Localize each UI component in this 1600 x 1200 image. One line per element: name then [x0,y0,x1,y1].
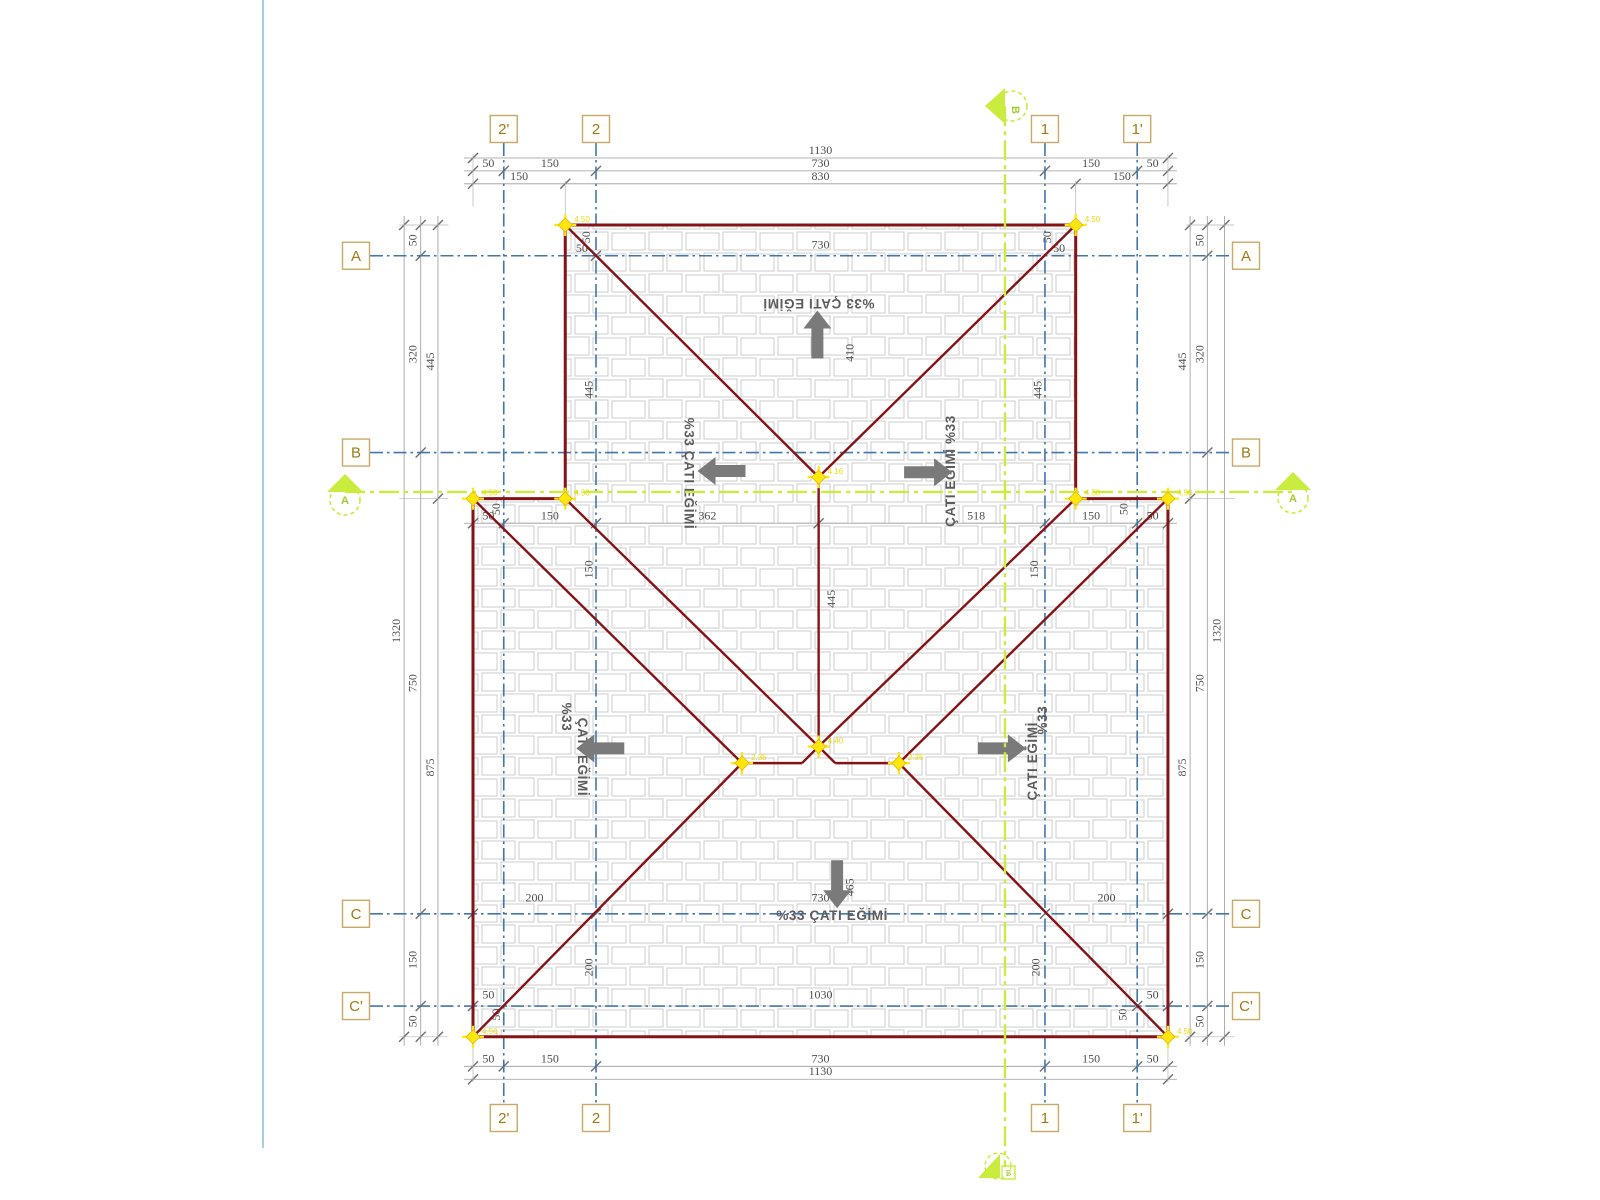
dim-label: 150 [541,156,559,170]
section-marker-a-right-letter: A [1289,493,1297,505]
dim-row: 1130 [464,1064,1177,1084]
dim-label: 150 [1082,1051,1100,1065]
dim-row: 150830150 [464,169,1177,189]
grid-row-right-label: C' [1239,998,1253,1015]
inline-dim-label: 410 [843,344,857,362]
dim-label: 750 [406,674,420,692]
section-marker-a-left-letter: A [341,495,349,507]
grid-col-bottom-label: 1 [1041,1110,1049,1127]
grid-row-right-label: C [1241,906,1252,923]
section-marker-b-bottom-letter: B [1006,1169,1011,1178]
dim-label: 362 [698,508,716,522]
section-marker-a-left-icon [327,474,363,492]
grid-row-left-label: B [351,445,361,462]
diamond-elevation-label: 2.35 [751,753,767,762]
dim-col: 1320 [1210,216,1230,1046]
dim-label: 50 [1147,156,1159,170]
dim-label: 150 [541,1051,559,1065]
inline-dim-label: 150 [581,560,595,578]
diamond-elevation-label: 4.50 [574,215,590,224]
section-marker-b-top-icon [985,88,1005,124]
slope-label: ÇATI EĞİMİ [1025,722,1040,801]
inline-dim-label: 1030 [808,988,832,1002]
dim-label: 50 [406,234,420,246]
dim-label: 1130 [809,1064,833,1078]
dim-label: 50 [1147,1051,1159,1065]
diamond-elevation-label: 4.50 [1085,489,1101,498]
section-marker-a-right-icon [1275,472,1311,490]
slope-label: %33 ÇATI EĞİMİ [763,296,875,311]
dim-label: 320 [1192,345,1206,363]
dim-label: 50 [1192,1015,1206,1027]
diamond-elevation-label: 4.40 [828,737,844,746]
inline-dim-label: 200 [1028,958,1042,976]
slope-label: %33 ÇATI EĞİMİ [682,418,697,530]
dim-label: 518 [967,508,985,522]
diamond-elevation-label: 4.50 [482,1027,498,1036]
dim-label: 50 [482,156,494,170]
dim-label: 150 [1082,156,1100,170]
diamond-elevation-label: 2.35 [908,753,924,762]
dim-col: 1320 [389,216,409,1046]
grid-col-top-label: 2' [498,121,509,138]
dim-label: 150 [510,169,528,183]
dim-label: 830 [811,169,829,183]
section-marker-b-top-letter: B [1009,106,1021,114]
inline-dim-label: 730 [811,237,829,251]
grid-col-bottom-label: 2 [592,1110,600,1127]
inline-dim-label: 50 [1116,503,1130,515]
dim-label: 150 [1113,169,1131,183]
inline-dim-label: 50 [1040,231,1054,243]
dim-label: 445 [1175,353,1189,371]
dim-col: 5032075015050 [406,216,426,1046]
dim-label: 150 [1192,951,1206,969]
roof-plan-page: 1130501507301505015083015050150362518150… [0,0,1600,1200]
dim-label: 875 [423,758,437,776]
dim-label: 445 [423,353,437,371]
grid-row-left-label: C' [349,998,363,1015]
grid-col-bottom-label: 2' [498,1110,509,1127]
dim-label: 150 [541,508,559,522]
dim-label: 750 [1192,674,1206,692]
inline-dim-label: 445 [581,381,595,399]
slope-label: %33 ÇATI EĞİMİ [776,908,888,923]
inline-dim-label: 50 [1053,241,1065,255]
dim-label: 730 [811,1051,829,1065]
dim-label: 1320 [1210,619,1224,643]
grid-col-top-label: 1 [1041,121,1049,138]
slope-label: %33 [559,703,574,732]
diamond-elevation-label: 4.50 [574,489,590,498]
diamond-elevation-label: 4.16 [828,467,844,476]
dim-col: 445875 [1175,216,1195,1046]
dim-label: 50 [406,1015,420,1027]
roof-plan-canvas: 1130501507301505015083015050150362518150… [0,0,1600,1200]
diamond-elevation-label: 4.50 [482,489,498,498]
dim-label: 50 [482,1051,494,1065]
inline-dim-label: 200 [581,958,595,976]
dim-label: 1320 [389,619,403,643]
diamond-elevation-label: 4.50 [1177,489,1193,498]
inline-dim-label: 50 [482,988,494,1002]
inline-dim-label: 445 [1030,381,1044,399]
inline-dim-label: 200 [1097,891,1115,905]
inline-dim-label: 150 [1027,560,1041,578]
grid-row-right-label: A [1241,248,1251,265]
grid-col-bottom-label: 1' [1132,1110,1143,1127]
inline-dim-label: 50 [1116,1009,1130,1021]
inline-dim-label: 50 [1147,988,1159,1002]
inline-dim-label: 445 [824,590,838,608]
dim-label: 50 [1192,234,1206,246]
grid-row-left-label: C [351,906,362,923]
inline-dim-label: 50 [489,503,503,515]
grid-col-top-label: 2 [592,121,600,138]
grid-col-top-label: 1' [1132,121,1143,138]
grid-row-right-label: B [1241,445,1251,462]
dim-label: 320 [406,345,420,363]
dim-label: 730 [811,156,829,170]
diamond-elevation-label: 4.50 [1085,215,1101,224]
dim-label: 875 [1175,758,1189,776]
inline-dim-label: 200 [526,891,544,905]
dim-label: 1130 [809,143,833,157]
dim-label: 150 [1082,508,1100,522]
dim-label: 150 [406,951,420,969]
diamond-elevation-label: 4.50 [1177,1027,1193,1036]
dim-col: 445875 [423,216,443,1046]
grid-row-left-label: A [351,248,361,265]
